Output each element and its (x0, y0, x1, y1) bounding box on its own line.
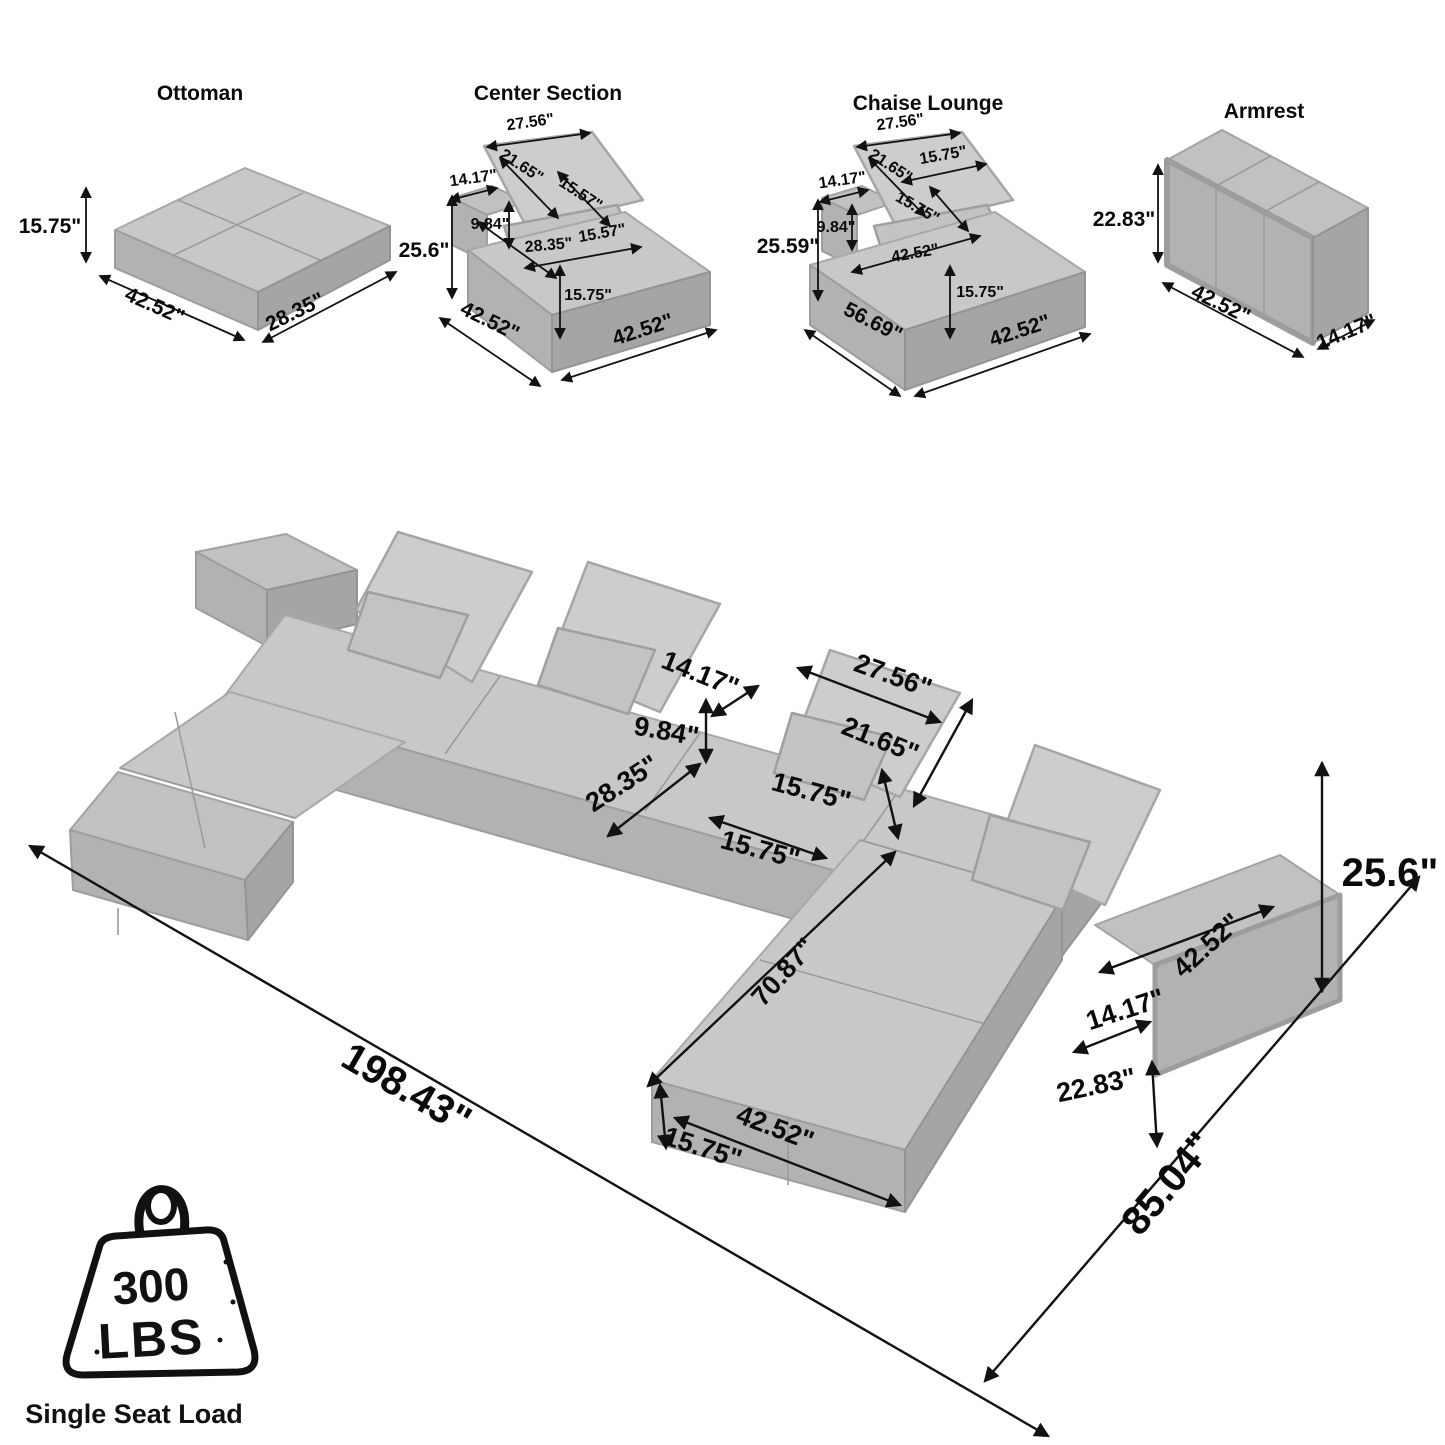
overall-height-label: 25.59" (757, 235, 820, 258)
armrest-height-label: 22.83" (1093, 208, 1156, 231)
pillow-width-label: 27.56" (506, 111, 556, 134)
weight-unit-label: LBS (97, 1308, 206, 1369)
weight-caption-label: Single Seat Load (25, 1399, 243, 1429)
weight-handle-hole (148, 1190, 174, 1222)
center-section-panel: Center Section 27.56" 21.65" 15.57" 14.1… (399, 82, 716, 386)
overall-height-label: 25.6" (1342, 851, 1439, 895)
ottoman-height-label: 15.75" (19, 215, 82, 238)
overall-height-label: 25.6" (399, 239, 450, 262)
armrest-panel: Armrest 22.83" 42.52" 14.17" (1093, 100, 1380, 357)
center-section-title: Center Section (474, 82, 622, 105)
chaise-lounge-title: Chaise Lounge (853, 92, 1004, 115)
diagram-canvas: Ottoman 15.75" 42.52" 28.35" Center Sect… (0, 0, 1445, 1445)
armrest-height-label: 22.83" (1054, 1062, 1139, 1108)
weight-badge: 300 LBS Single Seat Load (25, 1190, 255, 1429)
ottoman-title: Ottoman (157, 82, 243, 105)
seat-height-label: 15.75" (564, 287, 612, 304)
seat-height-label: 15.75" (956, 284, 1004, 301)
overall-length-label: 198.43" (334, 1034, 478, 1143)
armrest-title: Armrest (1224, 100, 1305, 123)
main-sofa-illustration (70, 532, 1340, 1212)
back-height-label: 9.84" (817, 219, 856, 236)
chaise-lounge-panel: Chaise Lounge 27.56" 21.65" 15.75" 14.17… (757, 92, 1090, 396)
overall-depth-label: 85.04" (1113, 1124, 1223, 1243)
ottoman-panel: Ottoman 15.75" 42.52" 28.35" (19, 82, 396, 342)
armrest-illustration (1167, 130, 1368, 343)
product-dimension-diagram: Ottoman 15.75" 42.52" 28.35" Center Sect… (0, 0, 1445, 1445)
weight-value-label: 300 (111, 1257, 191, 1314)
